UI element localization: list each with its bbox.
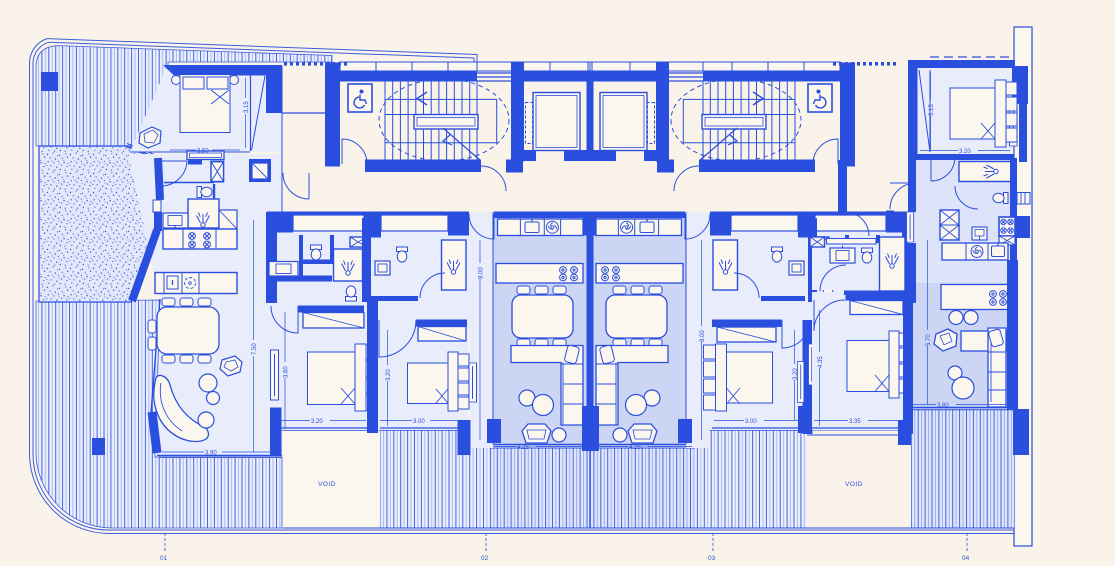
svg-text:VOID: VOID [318,481,336,488]
svg-text:3.35: 3.35 [849,419,861,425]
svg-text:3.60: 3.60 [284,366,290,378]
svg-text:02: 02 [481,555,489,562]
svg-text:8.00: 8.00 [479,267,485,279]
svg-text:04: 04 [962,555,970,562]
svg-text:8.00: 8.00 [700,330,706,342]
svg-text:3.15: 3.15 [929,104,935,116]
svg-text:3.90: 3.90 [205,451,217,457]
svg-text:4.25: 4.25 [517,445,529,451]
svg-text:5.70: 5.70 [926,334,932,346]
svg-text:3.20: 3.20 [311,419,323,425]
svg-text:3.15: 3.15 [244,101,250,113]
svg-text:3.00: 3.00 [745,419,757,425]
svg-text:4.35: 4.35 [818,356,824,368]
svg-text:01: 01 [160,555,168,562]
svg-text:3.50: 3.50 [197,149,209,155]
svg-text:4.25: 4.25 [629,445,641,451]
svg-text:03: 03 [708,555,716,562]
svg-text:3.20: 3.20 [959,149,971,155]
svg-text:3.80: 3.80 [937,403,949,409]
svg-text:3.20: 3.20 [793,368,799,380]
svg-text:VOID: VOID [845,481,863,488]
svg-text:3.00: 3.00 [413,419,425,425]
svg-text:3.20: 3.20 [386,369,392,381]
svg-text:7.50: 7.50 [252,343,258,355]
